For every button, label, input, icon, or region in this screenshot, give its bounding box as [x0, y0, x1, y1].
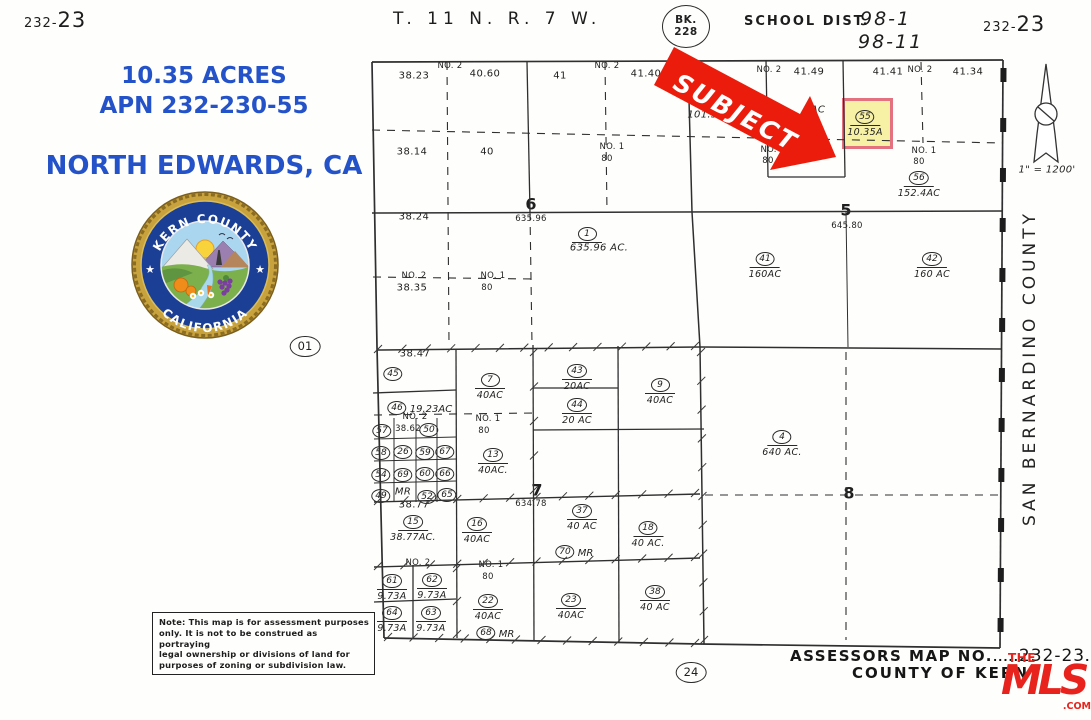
parcel-37: 3740 AC — [567, 498, 597, 532]
map-label: NO. 2 — [594, 61, 619, 71]
parcel-number-circle: 15 — [403, 515, 422, 529]
map-label: NO. 1 — [478, 560, 503, 570]
mls-logo-name: MLS — [1001, 656, 1085, 704]
map-label: 41.49 — [794, 67, 825, 78]
parcel-acreage: 40 AC — [567, 521, 597, 532]
parcel-acreage: 152.4AC — [898, 188, 940, 199]
parcel-52: 52 — [417, 484, 436, 504]
parcel-23: 2340AC — [556, 587, 586, 621]
parcel-acreage: 40AC. — [478, 465, 508, 476]
parcel-15: 1538.77AC. — [390, 509, 436, 543]
map-label: 1" = 1200' — [1019, 165, 1076, 176]
parcel-60: 60 — [415, 461, 434, 481]
parcel-acreage: 40AC — [556, 610, 586, 621]
map-label: 8 — [843, 484, 854, 503]
parcel-number-circle: 44 — [567, 398, 586, 412]
map-label: 80 — [482, 572, 493, 582]
parcel-number-circle: 23 — [561, 593, 580, 607]
parcel-number-circle: 70 — [555, 545, 574, 559]
parcel-44: 4420 AC — [562, 392, 592, 426]
parcel-number-circle: 43 — [567, 364, 586, 378]
parcel-acreage: 38.77AC. — [390, 532, 436, 543]
parcel-65: 65 — [437, 482, 456, 502]
parcel-acreage: 9.73A — [377, 623, 407, 634]
map-label: 635.96 AC. — [570, 243, 628, 254]
parcel-16: 1640AC — [462, 511, 492, 545]
parcel-number-circle: 22 — [478, 594, 497, 608]
parcel-1: 1 — [572, 221, 602, 243]
parcel-underline — [572, 242, 602, 243]
parcel-66: 66 — [435, 461, 454, 481]
parcel-number-circle: 55 — [855, 110, 874, 124]
map-label: 6 — [525, 195, 536, 214]
parcel-number-circle: 16 — [467, 517, 486, 531]
parcel-acreage: 40AC — [645, 395, 675, 406]
map-label: 5 — [840, 201, 851, 220]
map-label: 635.96 — [515, 214, 547, 224]
parcel-acreage: 9.73A — [416, 623, 446, 634]
map-label: 38.23 — [399, 71, 430, 82]
parcel-acreage: 160AC — [749, 269, 782, 280]
parcel-number-circle: 59 — [415, 446, 434, 460]
parcel-number-circle: 9 — [651, 378, 670, 392]
parcel-49: 49 — [371, 483, 390, 503]
map-label: NO. 1 — [760, 145, 785, 155]
parcel-number-circle: 60 — [415, 467, 434, 481]
parcel-61: 619.73A — [377, 568, 407, 602]
map-label: 101.56AC — [687, 110, 738, 121]
map-label: 80 — [481, 283, 492, 293]
parcel-number-circle: 4 — [773, 430, 792, 444]
parcel-70: 70MR — [555, 539, 574, 559]
map-label: NO. 2 — [401, 271, 426, 281]
parcel-number-circle: 1 — [578, 227, 597, 241]
map-label: 80 — [762, 156, 773, 166]
parcel-38: 3840 AC — [640, 579, 670, 613]
parcel-number-circle: 54 — [371, 468, 390, 482]
parcel-43: 4320AC — [562, 358, 592, 392]
parcel-69: 69 — [393, 462, 412, 482]
map-label: 40.60 — [470, 69, 501, 80]
mls-logo-tm: ™ — [1078, 664, 1087, 674]
parcel-number-circle: 26 — [393, 445, 412, 459]
parcel-01: 01 — [290, 335, 321, 357]
parcel-64: 649.73A — [377, 600, 407, 634]
parcel-number-circle: 41 — [755, 252, 774, 266]
parcel-acreage-side: MR — [499, 629, 515, 640]
map-label: NO. 1 — [475, 414, 500, 424]
parcel-number-circle: 66 — [435, 467, 454, 481]
parcel-45: 45 — [383, 361, 402, 381]
parcel-acreage-side: MR — [578, 548, 594, 559]
parcel-acreage-side: 19.23AC — [410, 404, 452, 415]
parcel-number-circle: 18 — [638, 521, 657, 535]
parcel-number-circle: 57 — [372, 424, 391, 438]
parcel-number-circle: 64 — [382, 606, 401, 620]
mls-logo: THE MLS ™ .COM — [1001, 650, 1091, 716]
parcel-18: 1840 AC. — [631, 515, 664, 549]
map-label: 41.34 — [953, 67, 984, 78]
parcel-acreage: 20AC — [562, 381, 592, 392]
map-label: 645.80 — [831, 221, 863, 231]
map-label: 41.41 — [873, 67, 904, 78]
map-label: 634.78 — [515, 499, 547, 509]
parcel-41: 41160AC — [749, 246, 782, 280]
parcel-63: 639.73A — [416, 600, 446, 634]
parcel-56: 56152.4AC — [898, 165, 940, 199]
parcel-62: 629.73A — [417, 567, 447, 601]
parcel-24: 24 — [676, 661, 707, 683]
parcel-9: 940AC — [645, 372, 675, 406]
map-label: 7 — [531, 481, 542, 500]
parcel-number-circle: 46 — [387, 401, 406, 415]
parcel-number-circle: 42 — [922, 252, 941, 266]
map-label: 41 — [553, 71, 567, 82]
parcel-68: 68MR — [476, 620, 495, 640]
assessor-map-page: 232-23 T. 11 N. R. 7 W. BK. 228 SCHOOL D… — [0, 0, 1091, 720]
parcel-number-circle: 67 — [435, 445, 454, 459]
map-label: 38.62 — [395, 424, 421, 434]
parcel-7: 740AC — [475, 367, 505, 401]
map-label-layer: 38.2340.604141.4041.4941.4141.34NO. 2NO.… — [0, 0, 1091, 720]
map-label: 40 — [480, 147, 494, 158]
parcel-22: 2240AC — [473, 588, 503, 622]
parcel-67: 67 — [435, 439, 454, 459]
parcel-number-circle: 45 — [383, 367, 402, 381]
map-label: NO. 2 — [756, 65, 781, 75]
parcel-number-circle: 37 — [572, 504, 591, 518]
parcel-57: 57 — [372, 418, 391, 438]
map-label: 80 — [601, 154, 612, 164]
map-label: NO. 1 — [911, 146, 936, 156]
map-label: AC — [811, 105, 825, 116]
parcel-acreage: 640 AC. — [762, 447, 801, 458]
parcel-number-circle: 63 — [421, 606, 440, 620]
parcel-59: 59 — [415, 440, 434, 460]
parcel-acreage: 160 AC — [914, 269, 950, 280]
parcel-number-circle: 61 — [382, 574, 401, 588]
mls-logo-com: .COM — [1063, 701, 1091, 712]
parcel-55: 5510.35A — [847, 104, 883, 138]
parcel-number-circle: 7 — [481, 373, 500, 387]
parcel-4: 4640 AC. — [762, 424, 801, 458]
map-label: NO. 2 — [437, 61, 462, 71]
parcel-number-circle: 24 — [676, 662, 707, 683]
parcel-number-circle: 56 — [909, 171, 928, 185]
map-label: 38.24 — [399, 212, 430, 223]
parcel-number-circle: 13 — [483, 448, 502, 462]
parcel-54: 54 — [371, 462, 390, 482]
parcel-13: 1340AC. — [478, 442, 508, 476]
map-label: 38.35 — [397, 283, 428, 294]
parcel-46: 4619.23AC — [387, 395, 406, 415]
parcel-number-circle: 58 — [371, 446, 390, 460]
parcel-number-circle: 01 — [290, 336, 321, 357]
parcel-42: 42160 AC — [914, 246, 950, 280]
map-label: NO. 1 — [599, 142, 624, 152]
parcel-number-circle: 50 — [419, 423, 438, 437]
map-label: NO. 2 — [907, 65, 932, 75]
parcel-number-circle: 49 — [371, 489, 390, 503]
parcel-number-circle: 68 — [476, 626, 495, 640]
map-label: 41.40 — [631, 69, 662, 80]
parcel-number-circle: 62 — [422, 573, 441, 587]
parcel-acreage: 10.35A — [847, 127, 883, 138]
parcel-58: 58 — [371, 440, 390, 460]
parcel-acreage: 20 AC — [562, 415, 592, 426]
parcel-26: 26 — [393, 439, 412, 459]
map-label: MR — [395, 487, 411, 498]
parcel-acreage: 40 AC. — [631, 538, 664, 549]
parcel-acreage: 40 AC — [640, 602, 670, 613]
parcel-acreage: 40AC — [462, 534, 492, 545]
parcel-acreage: 40AC — [475, 390, 505, 401]
parcel-50: 50 — [419, 417, 438, 437]
parcel-number-circle: 65 — [437, 488, 456, 502]
map-label: 38.14 — [397, 147, 428, 158]
map-label: 80 — [478, 426, 489, 436]
map-label: 38.47 — [400, 349, 431, 360]
map-label: NO. 1 — [480, 271, 505, 281]
parcel-number-circle: 69 — [393, 468, 412, 482]
parcel-number-circle: 38 — [645, 585, 664, 599]
parcel-number-circle: 52 — [417, 490, 436, 504]
